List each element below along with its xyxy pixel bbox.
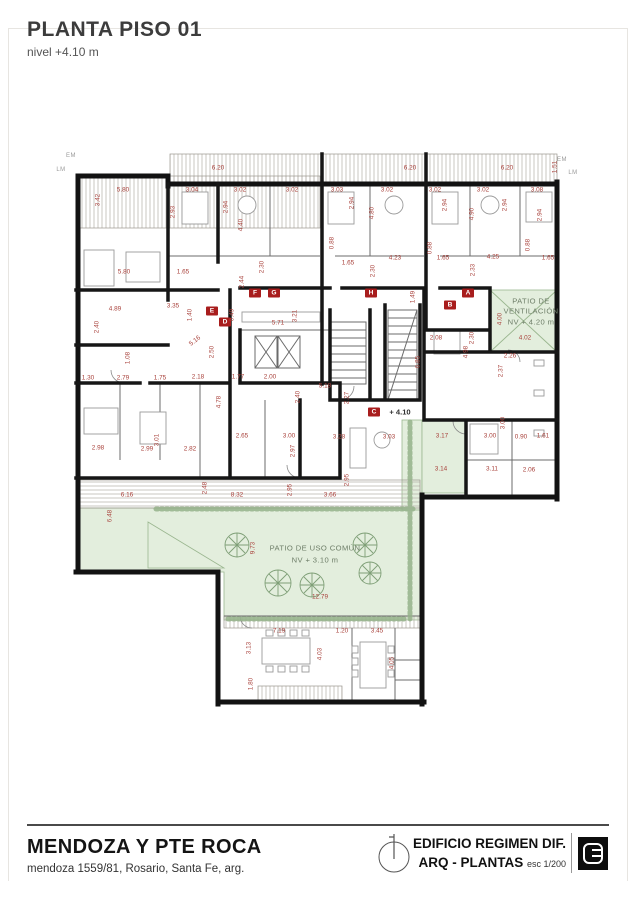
elevator-shafts (255, 336, 300, 368)
sheet-scale: esc 1/200 (527, 859, 566, 869)
project-block: MENDOZA Y PTE ROCA mendoza 1559/81, Rosa… (27, 836, 262, 875)
sheet: PLANTA PISO 01 nivel +4.10 m (0, 0, 636, 900)
sheet-type: ARQ - PLANTAS (418, 855, 523, 870)
footer-divider (27, 824, 609, 826)
floor-plan: EMLMEMLMFGHABEDC+ 4.10PATIO DEVENTILACIÓ… (0, 0, 636, 900)
footer-separator (571, 833, 572, 873)
ventilation-patio (490, 290, 557, 352)
stair-core (330, 310, 417, 400)
project-title: MENDOZA Y PTE ROCA (27, 836, 262, 859)
project-address: mendoza 1559/81, Rosario, Santa Fe, arg. (27, 863, 262, 875)
building-name: EDIFICIO REGIMEN DIF. (413, 836, 566, 851)
north-arrow-icon (372, 830, 416, 883)
plan-drawing (0, 0, 636, 900)
sheet-info-block: EDIFICIO REGIMEN DIF. ARQ - PLANTAS esc … (413, 836, 566, 870)
studio-logo-icon (578, 837, 608, 870)
